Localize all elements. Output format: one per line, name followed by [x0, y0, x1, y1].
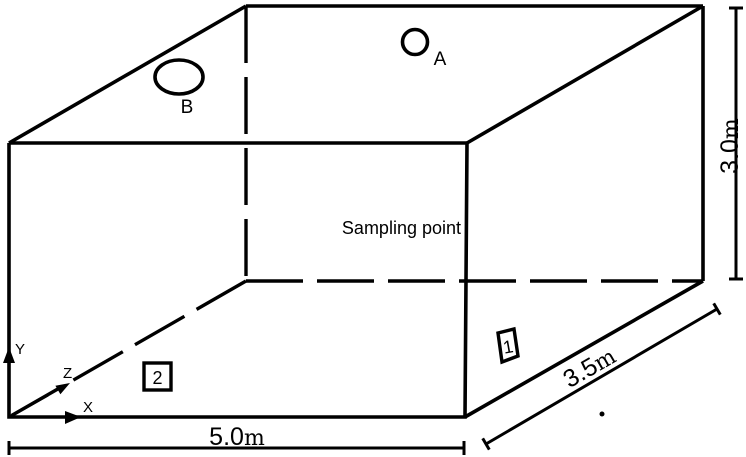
stray-dot	[600, 412, 605, 417]
marker-1-label: 1	[502, 336, 515, 357]
height-dim-label: 3.0m	[716, 118, 744, 174]
point-b-label: B	[181, 97, 194, 118]
width-dimension: 5.0m	[9, 423, 464, 455]
z-axis-arrowhead	[55, 383, 70, 394]
sampling-point-label: Sampling point	[342, 218, 461, 238]
top-left-depth-edge	[9, 6, 246, 143]
x-axis-arrowhead	[65, 411, 81, 424]
width-dim-label: 5.0m	[209, 423, 265, 451]
y-axis-arrowhead	[3, 347, 15, 363]
z-axis-line	[9, 395, 48, 417]
coordinate-axes: Y X Z	[3, 341, 93, 424]
z-axis-label: Z	[63, 365, 72, 382]
room-wireframe-svg: B A Sampling point 2 1 5.0m 3.0m 3.5m	[0, 0, 746, 457]
point-a-circle	[403, 30, 428, 55]
x-axis-label: X	[83, 399, 93, 416]
top-right-depth-edge	[467, 6, 703, 143]
height-dim-unit: m	[719, 118, 744, 139]
point-b-circle	[155, 60, 203, 94]
depth-dimension: 3.5m	[483, 303, 721, 449]
marker-2-label: 2	[152, 368, 162, 388]
height-dimension: 3.0m	[716, 8, 744, 279]
depth-dim-label: 3.5m	[558, 342, 620, 394]
width-dim-unit: m	[244, 426, 265, 451]
point-a-label: A	[434, 49, 447, 70]
width-dim-value: 5.0	[209, 423, 244, 451]
room-schematic: B A Sampling point 2 1 5.0m 3.0m 3.5m	[0, 0, 746, 457]
height-dim-value: 3.0	[716, 139, 744, 174]
y-axis-label: Y	[15, 341, 25, 358]
